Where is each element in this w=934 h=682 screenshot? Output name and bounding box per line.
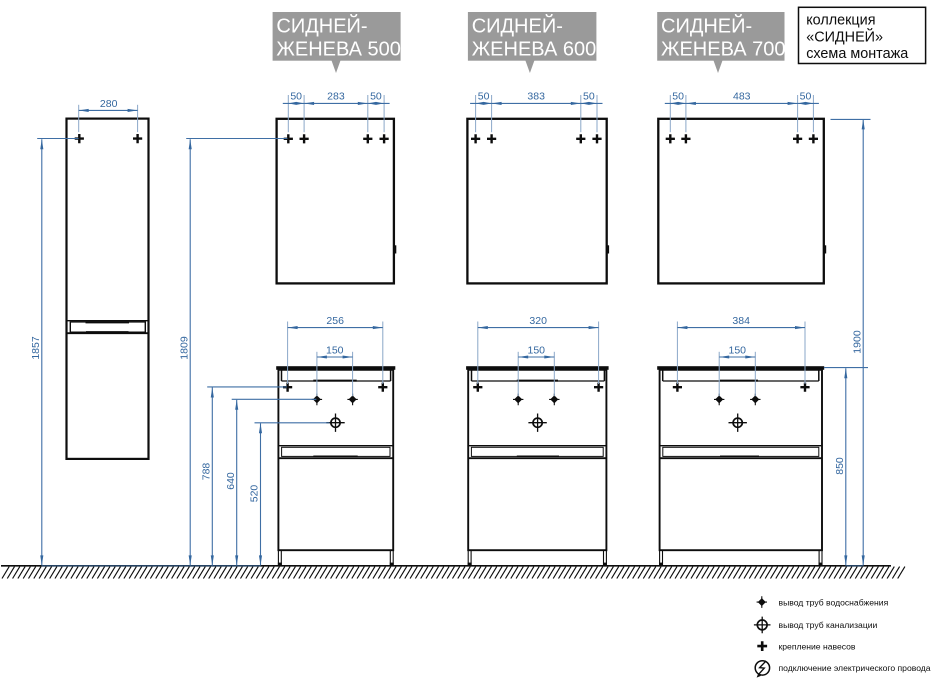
svg-text:«СИДНЕЙ»: «СИДНЕЙ» xyxy=(806,27,883,45)
svg-text:1857: 1857 xyxy=(30,336,42,360)
svg-text:ЖЕНЕВА 600: ЖЕНЕВА 600 xyxy=(472,39,597,61)
svg-text:520: 520 xyxy=(249,485,261,503)
svg-text:788: 788 xyxy=(200,463,212,481)
svg-text:50: 50 xyxy=(290,91,302,103)
svg-text:50: 50 xyxy=(800,91,812,103)
svg-text:150: 150 xyxy=(728,344,746,356)
svg-text:150: 150 xyxy=(527,344,545,356)
svg-text:СИДНЕЙ-: СИДНЕЙ- xyxy=(276,13,367,37)
svg-text:вывод труб канализации: вывод труб канализации xyxy=(779,620,878,630)
svg-text:1900: 1900 xyxy=(851,330,863,354)
svg-text:1809: 1809 xyxy=(178,336,190,360)
svg-text:283: 283 xyxy=(327,90,345,102)
svg-text:вывод труб водоснабжения: вывод труб водоснабжения xyxy=(779,597,889,607)
svg-text:50: 50 xyxy=(672,91,684,103)
svg-text:ЖЕНЕВА 500: ЖЕНЕВА 500 xyxy=(276,39,401,61)
svg-text:50: 50 xyxy=(478,91,490,103)
svg-text:150: 150 xyxy=(326,344,344,356)
svg-text:383: 383 xyxy=(527,90,545,102)
svg-text:СИДНЕЙ-: СИДНЕЙ- xyxy=(661,13,752,37)
svg-text:384: 384 xyxy=(732,315,750,327)
svg-text:СИДНЕЙ-: СИДНЕЙ- xyxy=(472,13,563,37)
svg-text:крепление навесов: крепление навесов xyxy=(779,641,856,651)
svg-text:640: 640 xyxy=(225,472,237,490)
svg-text:483: 483 xyxy=(733,90,751,102)
svg-text:280: 280 xyxy=(100,98,118,110)
svg-text:850: 850 xyxy=(834,457,846,475)
svg-text:схема монтажа: схема монтажа xyxy=(806,46,908,62)
svg-text:подключение электрического про: подключение электрического провода xyxy=(779,663,931,673)
svg-text:320: 320 xyxy=(529,315,547,327)
svg-text:50: 50 xyxy=(370,91,382,103)
svg-text:ЖЕНЕВА 700: ЖЕНЕВА 700 xyxy=(661,39,786,61)
svg-text:50: 50 xyxy=(583,91,595,103)
svg-text:коллекция: коллекция xyxy=(806,13,875,29)
svg-text:256: 256 xyxy=(326,315,344,327)
